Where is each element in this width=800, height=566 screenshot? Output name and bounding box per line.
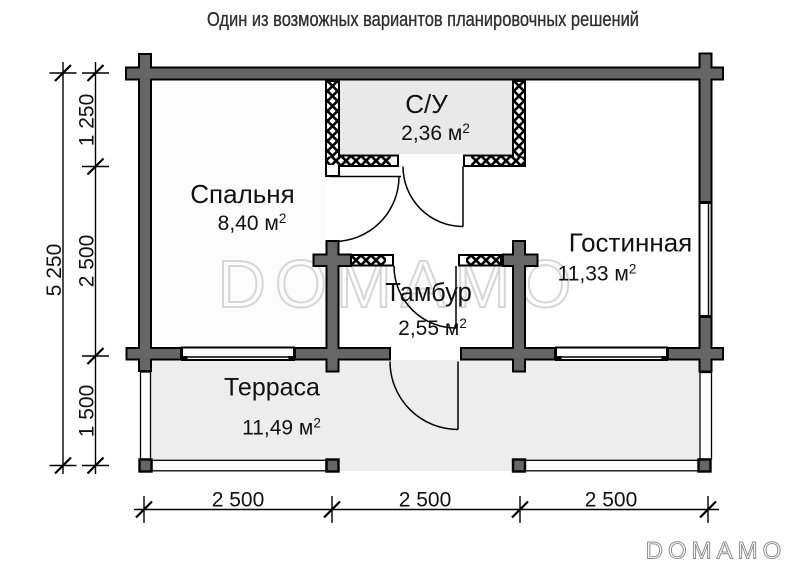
- svg-text:2,55 м2: 2,55 м2: [398, 316, 467, 340]
- svg-text:Один из возможных вариантов пл: Один из возможных вариантов планировочны…: [207, 8, 639, 31]
- svg-text:1 250: 1 250: [76, 94, 99, 147]
- svg-text:С/У: С/У: [405, 89, 448, 119]
- svg-text:2 500: 2 500: [399, 489, 452, 512]
- svg-text:2 500: 2 500: [212, 489, 265, 512]
- svg-text:11,49 м2: 11,49 м2: [242, 416, 321, 440]
- svg-text:11,33 м2: 11,33 м2: [558, 262, 637, 286]
- svg-text:Гостинная: Гостинная: [569, 228, 693, 258]
- svg-text:2 500: 2 500: [585, 489, 638, 512]
- svg-text:2,36 м2: 2,36 м2: [401, 121, 470, 145]
- svg-text:2 500: 2 500: [76, 235, 99, 288]
- svg-text:1 500: 1 500: [76, 385, 99, 438]
- svg-text:DOMAMO: DOMAMO: [646, 538, 787, 565]
- svg-text:5 250: 5 250: [43, 244, 66, 297]
- svg-text:Терраса: Терраса: [224, 374, 320, 402]
- svg-text:8,40 м2: 8,40 м2: [218, 211, 287, 235]
- svg-text:Тамбур: Тамбур: [385, 279, 472, 307]
- svg-text:Спальня: Спальня: [190, 179, 294, 209]
